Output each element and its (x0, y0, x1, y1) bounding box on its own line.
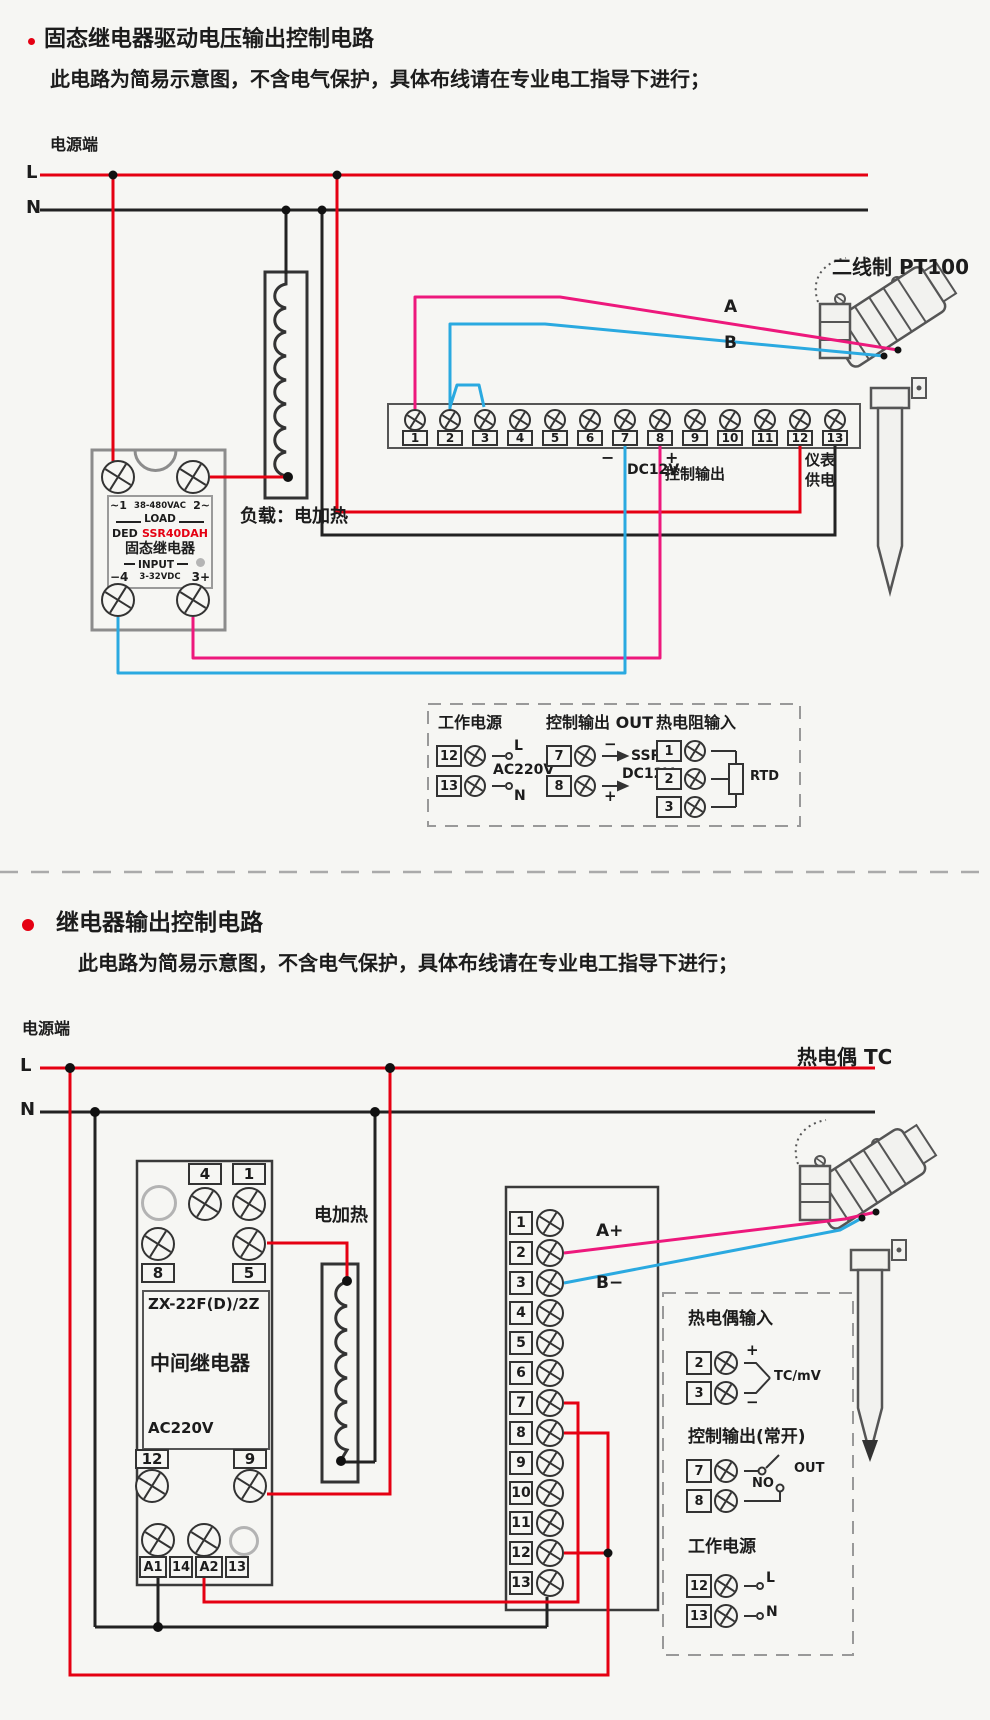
strip1-screw-1 (404, 409, 426, 431)
relay-contact-label-8: 8 (141, 1263, 175, 1283)
strip1-screw-11 (754, 409, 776, 431)
relay-contact-label-9: 9 (233, 1449, 267, 1469)
input-bracket-left (124, 563, 135, 570)
strip1-screw-8 (649, 409, 671, 431)
relay-contact-label-5: 5 (232, 1263, 266, 1283)
strip2-number-7: 7 (509, 1391, 533, 1415)
strip1-screw-7 (614, 409, 636, 431)
strip2-screw-1 (536, 1209, 564, 1237)
legend2-screw-2 (714, 1351, 738, 1375)
strip1-screw-12 (789, 409, 811, 431)
strip2-number-9: 9 (509, 1451, 533, 1475)
legend2-number-8: 8 (686, 1489, 712, 1513)
relay-screw-12 (135, 1469, 169, 1503)
strip1-screw-4 (509, 409, 531, 431)
legend1-ac220v: AC220V (493, 762, 554, 778)
load-bracket-right (179, 515, 204, 524)
legend1-screw-13 (464, 775, 486, 797)
strip1-screw-3 (474, 409, 496, 431)
strip2-number-6: 6 (509, 1361, 533, 1385)
legend2-screw-3 (714, 1381, 738, 1405)
strip1-number-11: 11 (752, 430, 778, 446)
relay-contact-label-1: 1 (232, 1163, 266, 1185)
ssr-term2: 2~ (193, 499, 210, 512)
legend1-screw-1 (684, 740, 706, 762)
relay-screw-1 (232, 1187, 266, 1221)
strip2-number-10: 10 (509, 1481, 533, 1505)
strip2-screw-7 (536, 1389, 564, 1417)
legend1-number-8: 8 (546, 775, 572, 797)
ssr-screw-1 (101, 460, 135, 494)
ssr-name: 固态继电器 (110, 541, 210, 557)
ssr-term3: 3+ (192, 570, 210, 584)
tc-label: 热电偶 TC (797, 1046, 892, 1069)
ssr-screw-3 (176, 583, 210, 617)
legend1-plus: + (604, 788, 617, 805)
legend2-number-3: 3 (686, 1381, 712, 1405)
legend2-screw-7 (714, 1459, 738, 1483)
heater1-coil (275, 212, 286, 476)
legend2-minus: − (746, 1394, 759, 1411)
relay-screw-a1 (141, 1523, 175, 1557)
ssr-vac-range: 38-480VAC (134, 501, 186, 511)
relay-voltage: AC220V (148, 1420, 214, 1437)
strip1-screw-10 (719, 409, 741, 431)
legend1-minus: − (604, 736, 617, 753)
blue-signal-wires (118, 324, 884, 1283)
ssr-line1: ~1 38-480VAC 2~ (110, 499, 210, 512)
relay-screw-4 (188, 1187, 222, 1221)
ssr-screw-2 (176, 460, 210, 494)
legend2-number-12: 12 (686, 1574, 712, 1598)
strip2-screw-5 (536, 1329, 564, 1357)
heater2-label: 电加热 (314, 1206, 368, 1227)
relay-coil-label-a1: A1 (139, 1556, 167, 1578)
heater2-coil (336, 1282, 347, 1460)
line-n-label-2: N (20, 1100, 35, 1121)
section1-bullet (28, 38, 35, 45)
wiring-diagram-page: 固态继电器驱动电压输出控制电路 此电路为简易示意图，不含电气保护，具体布线请在专… (0, 0, 990, 1720)
section2-bullet (22, 919, 34, 931)
strip2-number-11: 11 (509, 1511, 533, 1535)
strip1-screw-2 (439, 409, 461, 431)
ssr-term1: ~1 (110, 499, 127, 512)
ssr-load-label: LOAD (141, 513, 179, 525)
strip1-screw-5 (544, 409, 566, 431)
legend1-screw-12 (464, 745, 486, 767)
section2-title: 继电器输出控制电路 (56, 910, 263, 936)
legend1-rtd-title: 热电阻输入 (656, 714, 736, 732)
legend1-screw-2 (684, 768, 706, 790)
relay-contact-label-12: 12 (135, 1449, 169, 1469)
ssr-led (196, 558, 205, 567)
section1-subtitle: 此电路为简易示意图，不含电气保护，具体布线请在专业电工指导下进行； (50, 68, 710, 91)
wire-b-label: B (724, 334, 737, 354)
legend2-power-title: 工作电源 (688, 1538, 756, 1558)
ssr-notch (135, 450, 176, 470)
legend1-screw-7 (574, 745, 596, 767)
legend2-tc-title: 热电偶输入 (688, 1310, 773, 1330)
strip1-number-10: 10 (717, 430, 743, 446)
legend2-no: NO (752, 1477, 774, 1492)
line-n-label-1: N (26, 198, 41, 219)
relay-name: 中间继电器 (150, 1352, 250, 1375)
strip2-screw-2 (536, 1239, 564, 1267)
legend1-number-12: 12 (436, 745, 462, 767)
strip1-number-3: 3 (472, 430, 498, 446)
relay-screw-9 (233, 1469, 267, 1503)
relay-screw-5 (232, 1227, 266, 1261)
strip1-number-2: 2 (437, 430, 463, 446)
strip2-number-13: 13 (509, 1571, 533, 1595)
strip2-number-3: 3 (509, 1271, 533, 1295)
strip2-number-5: 5 (509, 1331, 533, 1355)
strip2-screw-3 (536, 1269, 564, 1297)
meter-supply-label-1: 仪表 (805, 452, 835, 469)
legend2-number-13: 13 (686, 1604, 712, 1628)
relay-contact-label-14: 14 (169, 1556, 193, 1578)
legend2-number-2: 2 (686, 1351, 712, 1375)
tc-probe-arrow (862, 1440, 878, 1462)
heater1-box (265, 272, 307, 498)
legend1-out-title: 控制输出 OUT (546, 714, 653, 732)
relay-coil-label-a2: A2 (195, 1556, 223, 1578)
relay-contact-label-13: 13 (225, 1556, 249, 1578)
strip1-number-4: 4 (507, 430, 533, 446)
legend2-tcmv: TC/mV (774, 1370, 821, 1385)
legend2-screw-13 (714, 1604, 738, 1628)
legend2-out: OUT (794, 1462, 824, 1477)
ssr-load-row: LOAD (116, 513, 204, 525)
legend1-n: N (514, 788, 526, 804)
legend2-n: N (766, 1604, 778, 1620)
strip2-screw-8 (536, 1419, 564, 1447)
section2-subtitle: 此电路为简易示意图，不含电气保护，具体布线请在专业电工指导下进行； (78, 952, 738, 975)
strip2-screw-4 (536, 1299, 564, 1327)
line-l-label-2: L (20, 1056, 31, 1077)
relay-screw-8 (141, 1227, 175, 1261)
strip2-screw-9 (536, 1449, 564, 1477)
strip1-number-13: 13 (822, 430, 848, 446)
legend1-number-13: 13 (436, 775, 462, 797)
strip1-screw-6 (579, 409, 601, 431)
ssr-term4: −4 (110, 570, 128, 584)
power-source-label-1: 电源端 (50, 136, 98, 154)
input-bracket-right (177, 563, 188, 570)
wire-b-minus-label: B− (596, 1274, 623, 1294)
meter-supply-label-2: 供电 (805, 472, 835, 489)
strip2-screw-13 (536, 1569, 564, 1597)
ssr-brand: DED (112, 527, 138, 540)
load-bracket-left (116, 515, 141, 524)
ssr-input-label: INPUT (135, 559, 177, 571)
legend2-number-7: 7 (686, 1459, 712, 1483)
pt100-label: 二线制 PT100 (832, 256, 969, 279)
ssr-vdc-range: 3-32VDC (139, 572, 180, 582)
relay-screw-a2 (187, 1523, 221, 1557)
strip1-screw-9 (684, 409, 706, 431)
relay-contact-label-4: 4 (188, 1163, 222, 1185)
strip2-screw-12 (536, 1539, 564, 1567)
legend1-screw-3 (684, 796, 706, 818)
power-source-label-2: 电源端 (22, 1020, 70, 1038)
ssr-model: SSR40DAH (142, 527, 208, 540)
strip1-number-7: 7 (612, 430, 638, 446)
dc-minus-label: − (601, 449, 614, 467)
strip1-number-5: 5 (542, 430, 568, 446)
strip2-screw-11 (536, 1509, 564, 1537)
strip1-number-1: 1 (402, 430, 428, 446)
legend1-number-2: 2 (656, 768, 682, 790)
wire-a-label: A (724, 298, 737, 318)
strip2-screw-10 (536, 1479, 564, 1507)
legend1-rtd: RTD (750, 770, 779, 785)
load-heater-label: 负载：电加热 (240, 507, 348, 528)
strip2-screw-6 (536, 1359, 564, 1387)
legend2-out-title: 控制输出(常开) (688, 1428, 806, 1448)
strip1-number-6: 6 (577, 430, 603, 446)
legend1-number-3: 3 (656, 796, 682, 818)
strip2-number-8: 8 (509, 1421, 533, 1445)
line-l-label-1: L (26, 163, 37, 184)
strip2-number-12: 12 (509, 1541, 533, 1565)
legend2-screw-12 (714, 1574, 738, 1598)
legend1-l: L (514, 738, 523, 754)
strip2-number-4: 4 (509, 1301, 533, 1325)
strip1-number-8: 8 (647, 430, 673, 446)
control-output-label: 控制输出 (665, 466, 725, 483)
legend1-power-title: 工作电源 (438, 714, 502, 732)
strip2-number-2: 2 (509, 1241, 533, 1265)
ssr-line6: −4 3-32VDC 3+ (110, 570, 210, 584)
strip1-number-12: 12 (787, 430, 813, 446)
tc-sensor-graphic (796, 1118, 941, 1454)
ssr-input-row: INPUT (124, 559, 188, 570)
legend2-l: L (766, 1570, 775, 1586)
legend1-number-1: 1 (656, 740, 682, 762)
legend2-screw-8 (714, 1489, 738, 1513)
ssr-model-row: DED SSR40DAH (112, 527, 208, 540)
legend2-plus: + (746, 1342, 759, 1359)
relay-mount-hole-top (141, 1185, 177, 1221)
strip1-number-9: 9 (682, 430, 708, 446)
relay-model: ZX-22F(D)/2Z (148, 1296, 260, 1313)
wire-a-plus-label: A+ (596, 1222, 623, 1242)
strip1-screw-13 (824, 409, 846, 431)
relay-mount-hole-bottom (229, 1526, 259, 1556)
section1-title: 固态继电器驱动电压输出控制电路 (44, 27, 374, 52)
ssr-screw-4 (101, 583, 135, 617)
strip2-number-1: 1 (509, 1211, 533, 1235)
legend1-number-7: 7 (546, 745, 572, 767)
legend1-screw-8 (574, 775, 596, 797)
